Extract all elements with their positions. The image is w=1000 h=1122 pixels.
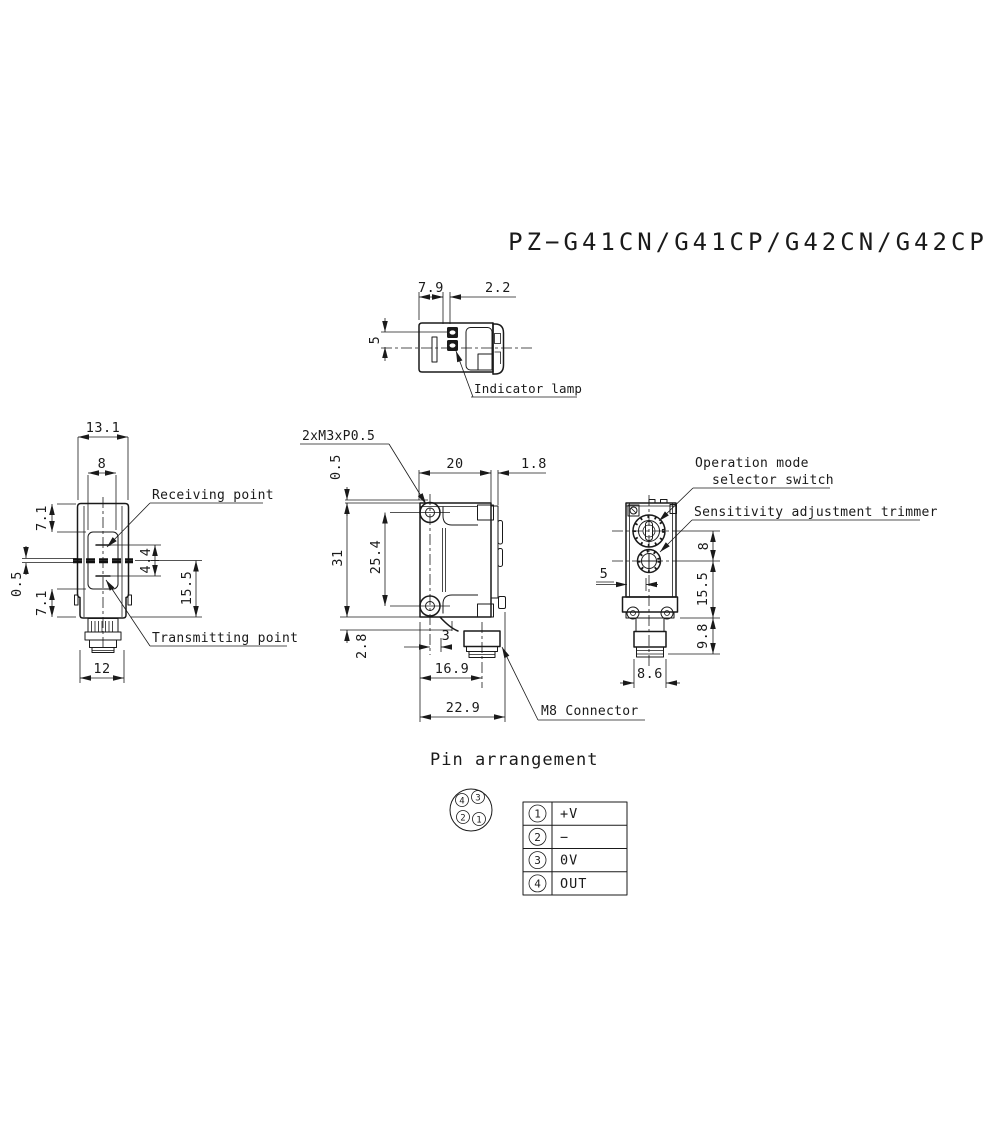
dim-front-15-5: 15.5	[179, 571, 195, 606]
pin-row-3-label: 0V	[560, 853, 578, 869]
rear-view: 5 8 15.5 9.8 8.6 Operation mode selector…	[596, 456, 938, 688]
dim-side-16-9: 16.9	[435, 661, 470, 677]
pin-row-1-number: 1	[534, 808, 541, 821]
dim-front-0-5: 0.5	[9, 571, 25, 597]
dim-top-5: 5	[367, 336, 383, 345]
front-view-body	[73, 497, 133, 653]
pin-3-number: 3	[475, 794, 480, 804]
pin-row-4-label: OUT	[560, 876, 587, 892]
dim-rear-8-6: 8.6	[637, 666, 663, 682]
pin-row-2-label: −	[560, 829, 569, 845]
dim-rear-8: 8	[696, 542, 712, 551]
pin-2-number: 2	[460, 814, 465, 824]
receiving-point-label: Receiving point	[152, 488, 274, 503]
side-view-body	[420, 494, 506, 688]
dim-front-12: 12	[93, 661, 110, 677]
flange-screw-right	[661, 607, 673, 619]
dim-side-31: 31	[330, 549, 346, 566]
pin-table-row-3: 3 0V	[529, 852, 578, 869]
pin-1-number: 1	[476, 816, 481, 826]
technical-drawing-page: PZ−G41CN/G41CP/G42CN/G42CP 5	[0, 0, 1000, 1122]
operation-mode-label-line1: Operation mode	[695, 456, 809, 471]
pin-table-row-4: 4 OUT	[529, 875, 587, 892]
pin-row-2-number: 2	[534, 831, 541, 844]
dim-side-0-5: 0.5	[328, 454, 344, 480]
m8-connector-callout: M8 Connector	[502, 647, 645, 720]
pin-row-1-label: +V	[560, 806, 578, 822]
operation-mode-label-line2: selector switch	[712, 473, 834, 488]
lens-bump-top	[498, 521, 503, 545]
dim-side-25-4: 25.4	[368, 540, 384, 575]
pin-row-4-number: 4	[534, 877, 541, 890]
rear-flange	[623, 597, 678, 619]
dim-top-7-9: 7.9	[418, 280, 444, 296]
dim-rear-15-5: 15.5	[695, 572, 711, 607]
pin-connector-face: 4 3 2 1	[450, 789, 492, 831]
pin-arrangement: Pin arrangement 4 3 2 1 1 +V	[430, 750, 627, 895]
sensitivity-trimmer-label: Sensitivity adjustment trimmer	[694, 505, 938, 520]
drawing-title: PZ−G41CN/G41CP/G42CN/G42CP	[508, 228, 988, 256]
transmitting-point-label: Transmitting point	[152, 631, 298, 646]
side-view: 0.5 31 2.8 25.4 20 1.8 3	[300, 429, 645, 722]
thread-callout: 2xM3xP0.5	[300, 429, 426, 504]
dim-side-1-8: 1.8	[521, 456, 547, 472]
side-view-dimensions: 0.5 31 2.8 25.4 20 1.8 3	[328, 454, 547, 722]
dim-front-7-1-bottom: 7.1	[34, 590, 50, 616]
rear-connector	[634, 618, 666, 657]
dim-side-3: 3	[442, 628, 451, 644]
top-view: 5 7.9 2.2 Indicator lamp	[367, 280, 582, 397]
indicator-lamp-callout: Indicator lamp	[456, 351, 582, 397]
front-view: 13.1 8 7.1 0.5 7.1 4.4 1	[9, 420, 298, 683]
pin-table-row-1: 1 +V	[529, 805, 578, 822]
pin-arrangement-heading: Pin arrangement	[430, 750, 599, 770]
dim-side-2-8: 2.8	[354, 633, 370, 659]
dim-front-8: 8	[98, 456, 107, 472]
top-cap	[493, 324, 504, 374]
thread-label: 2xM3xP0.5	[302, 429, 375, 444]
dim-top-2-2: 2.2	[485, 280, 511, 296]
dim-rear-5: 5	[600, 566, 609, 582]
dim-side-20: 20	[446, 456, 463, 472]
lens-bump-bottom	[498, 549, 503, 567]
latch-tab	[499, 597, 506, 609]
flange-screw-left	[627, 607, 639, 619]
m8-connector-label: M8 Connector	[541, 704, 639, 719]
indicator-lamp-label: Indicator lamp	[474, 381, 582, 396]
pin-table: 1 +V 2 − 3 0V 4 OUT	[523, 802, 627, 895]
dim-front-7-1-top: 7.1	[34, 505, 50, 531]
dim-side-22-9: 22.9	[446, 700, 481, 716]
receiving-point-callout: Receiving point	[107, 488, 274, 547]
dim-front-13-1: 13.1	[86, 420, 121, 436]
dim-rear-9-8: 9.8	[695, 623, 711, 649]
top-slot	[432, 337, 437, 362]
dimension-drawing: PZ−G41CN/G41CP/G42CN/G42CP 5	[0, 0, 1000, 1122]
pin-row-3-number: 3	[534, 854, 541, 867]
top-view-body	[381, 323, 533, 374]
pin-4-number: 4	[459, 797, 464, 807]
pin-table-row-2: 2 −	[529, 828, 569, 845]
transmitting-point-callout: Transmitting point	[106, 580, 298, 646]
